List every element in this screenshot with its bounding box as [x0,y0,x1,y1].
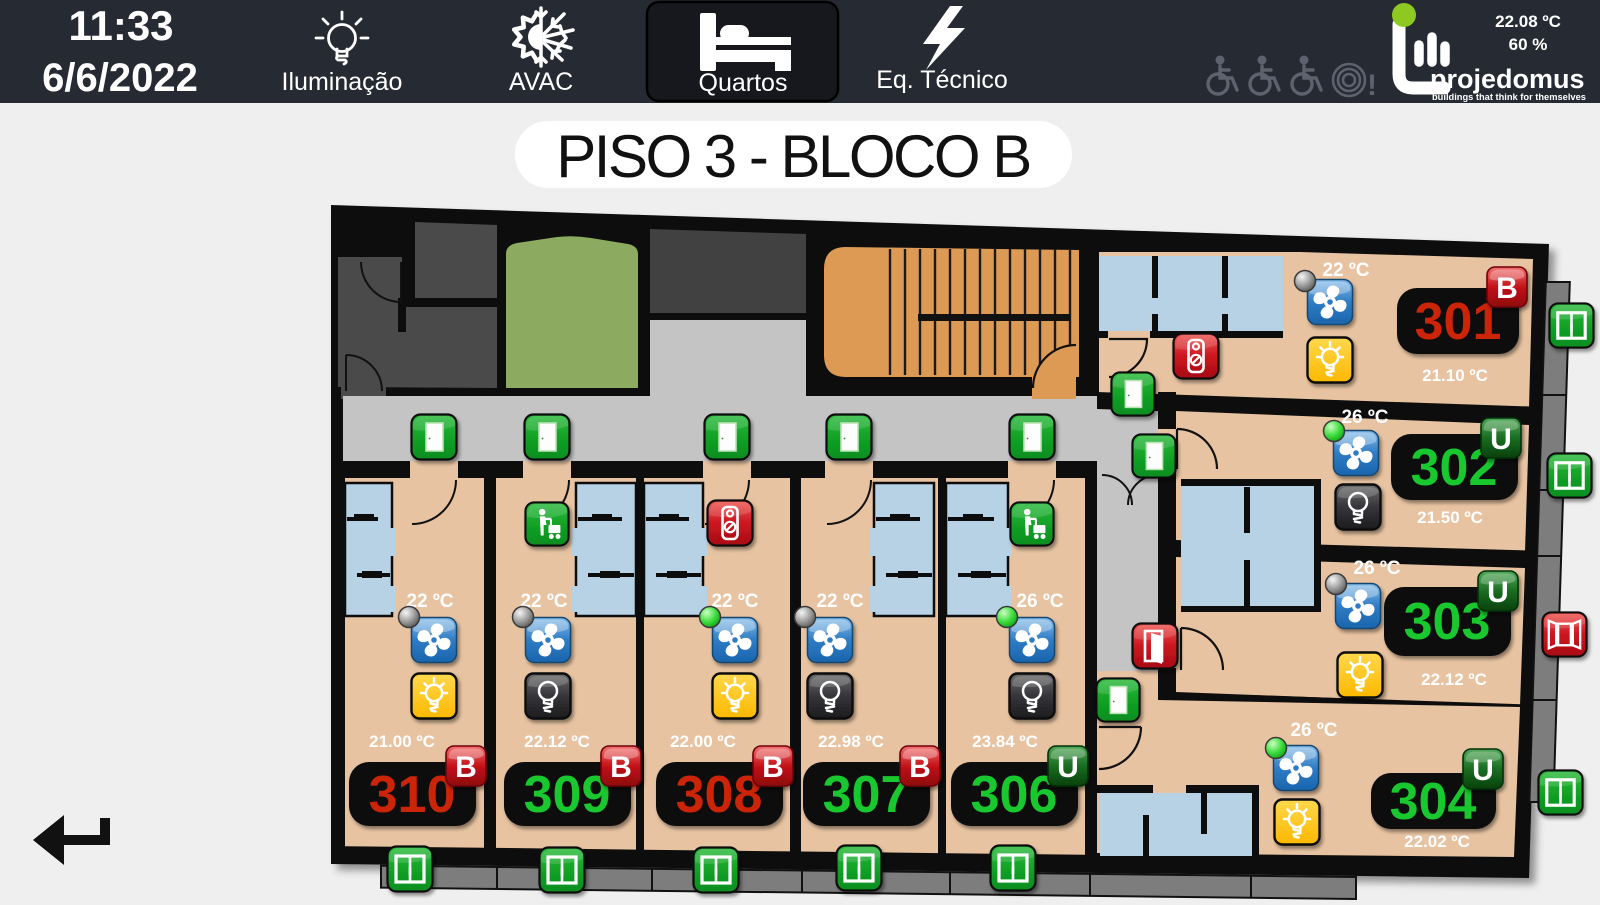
svg-text:Quartos: Quartos [699,69,788,97]
svg-text:11:33: 11:33 [68,2,173,49]
svg-text:26 ºC: 26 ºC [1353,558,1400,579]
svg-text:23.84 ºC: 23.84 ºC [972,732,1038,751]
svg-text:60 %: 60 % [1509,35,1548,54]
svg-text:21.10 ºC: 21.10 ºC [1422,366,1488,385]
svg-text:22.12 ºC: 22.12 ºC [1421,670,1487,689]
svg-text:306: 306 [971,766,1058,824]
svg-text:projedomus: projedomus [1430,64,1585,94]
svg-text:21.00 ºC: 21.00 ºC [369,732,435,751]
svg-text:22 ºC: 22 ºC [1322,260,1369,281]
svg-text:AVAC: AVAC [509,68,573,96]
svg-text:Eq. Técnico: Eq. Técnico [876,66,1008,94]
svg-text:22.08 ºC: 22.08 ºC [1495,12,1561,31]
svg-text:!: ! [1367,69,1377,102]
svg-text:310: 310 [369,766,456,824]
svg-text:Iluminação: Iluminação [282,68,403,96]
svg-text:309: 309 [524,766,611,824]
svg-text:PISO 3 - BLOCO B: PISO 3 - BLOCO B [556,123,1030,190]
svg-text:21.50 ºC: 21.50 ºC [1417,508,1483,527]
svg-text:22 ºC: 22 ºC [816,591,863,612]
svg-text:22.02 ºC: 22.02 ºC [1404,832,1470,851]
svg-text:6/6/2022: 6/6/2022 [42,56,198,100]
svg-text:22 ºC: 22 ºC [711,591,758,612]
svg-text:308: 308 [676,766,763,824]
svg-text:26 ºC: 26 ºC [1016,591,1063,612]
svg-text:22.98 ºC: 22.98 ºC [818,732,884,751]
svg-text:26 ºC: 26 ºC [1290,720,1337,741]
svg-text:307: 307 [823,766,910,824]
svg-text:buildings that think for thems: buildings that think for themselves [1432,92,1586,102]
svg-text:26 ºC: 26 ºC [1341,407,1388,428]
svg-text:22.00 ºC: 22.00 ºC [670,732,736,751]
svg-text:22.12 ºC: 22.12 ºC [524,732,590,751]
